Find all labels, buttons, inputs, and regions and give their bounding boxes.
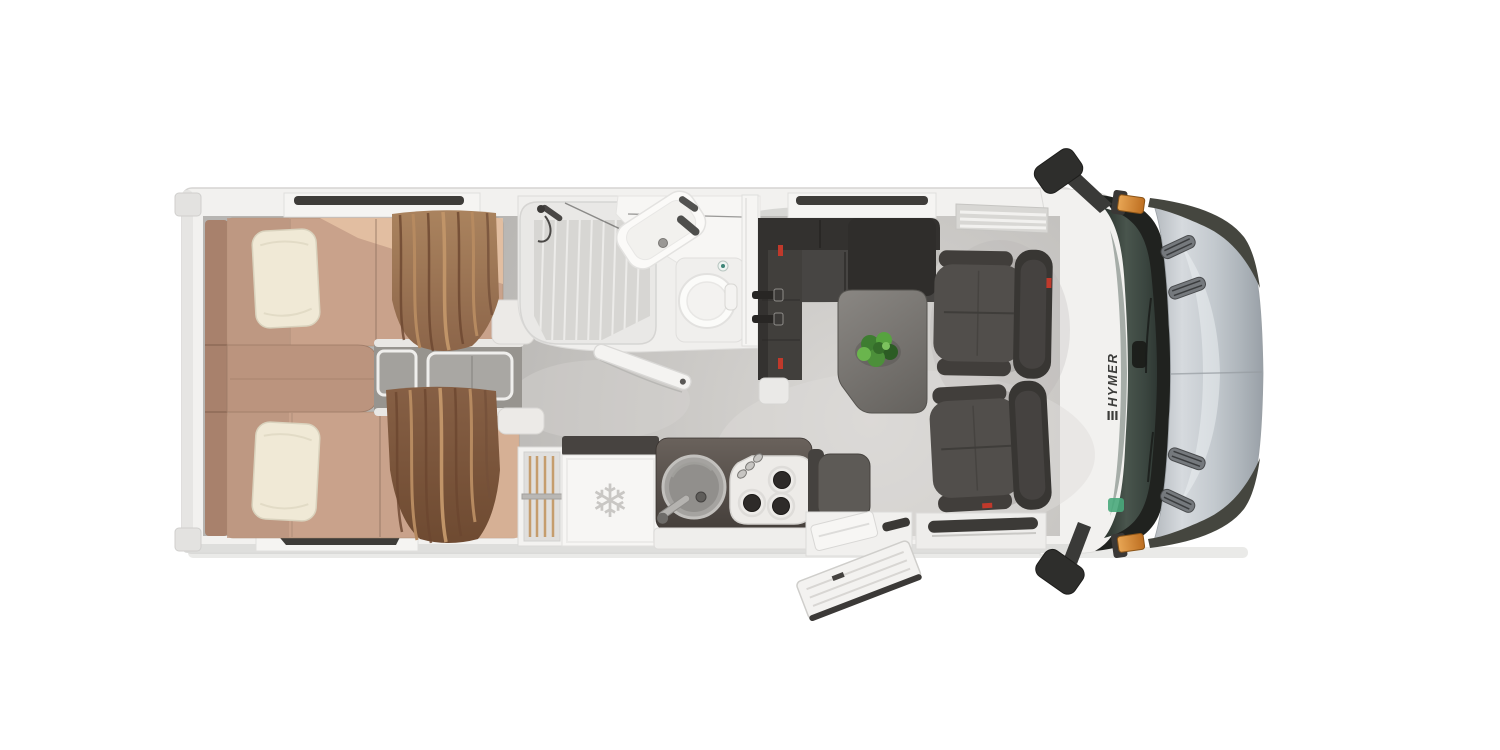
wardrobe [518,447,566,546]
hymer-brand-label: HYMER [1105,353,1120,407]
rear-corner-trim-bottom [175,528,201,551]
snowflake-icon: ❄ [591,474,630,528]
bedside-shelf-bottom [498,408,544,434]
kitchen-cabinet-front [654,528,812,549]
rear-wall-shade [182,190,193,551]
headboard-cushion [205,220,228,536]
belt-anchor [982,503,992,509]
bedroom [205,210,544,543]
bathroom-partition [742,195,758,346]
lounge-top-window [788,193,936,218]
rear-corner-trim-top [175,193,201,216]
sofa-base [759,378,789,404]
refrigerator: ❄ [562,436,659,546]
cab-top-slat-window [956,204,1048,233]
windshield-sticker [1108,498,1124,512]
belt-anchor [1046,278,1051,288]
motorhome-floorplan: ❄ [0,0,1500,750]
sink-drain [696,492,706,502]
pillow-bottom [251,421,320,521]
screenshot-canvas: ❄ [0,0,1500,750]
rearview-mirror [1132,341,1147,368]
pillow-top [252,228,321,328]
entry-door [796,511,923,622]
swivel-seat-front [933,248,1053,379]
curtain-top-bed [392,210,499,351]
hymer-logo-bars [1108,411,1118,420]
basin-drain [659,239,668,248]
wardrobe-rail [522,494,562,499]
toilet-lever [725,284,737,310]
belt-anchor [778,245,783,256]
gas-hob [730,452,812,524]
lounge-table [838,290,927,413]
swivel-seat-rear [928,380,1053,515]
sofa-corner-backrest [848,218,936,296]
toilet [676,258,744,342]
cab-door-window [916,513,1046,549]
belt-anchor [778,358,783,369]
